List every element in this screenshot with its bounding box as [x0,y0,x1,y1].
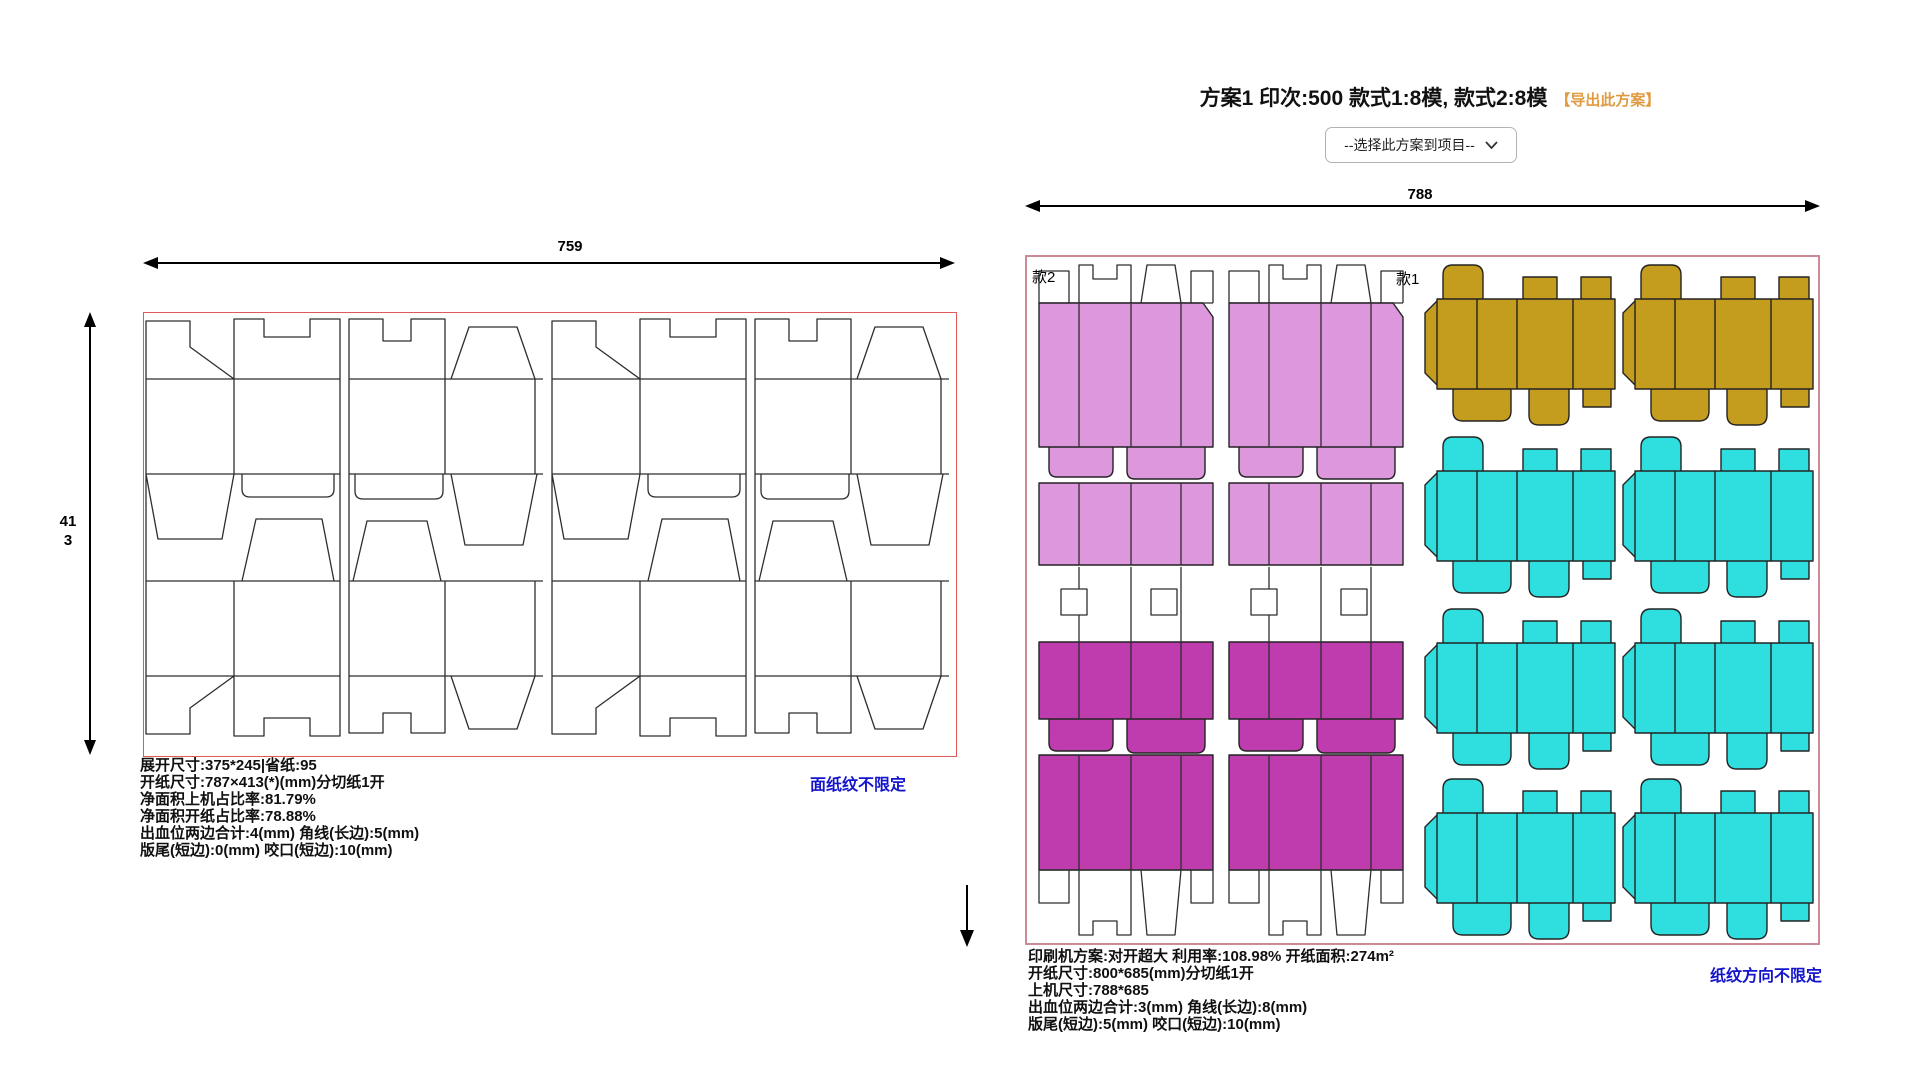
info-line: 开纸尺寸:787×413(*)(mm)分切纸1开 [140,774,419,791]
plan-project-select[interactable]: --选择此方案到项目-- [1325,127,1517,163]
info-line: 上机尺寸:788*685 [1028,982,1394,999]
plan-project-select-value: --选择此方案到项目-- [1344,135,1475,155]
left-sheet-dieline-svg [144,313,956,756]
info-line: 展开尺寸:375*245|省纸:95 [140,757,419,774]
style2-label: 款2 [1032,266,1055,287]
info-line: 开纸尺寸:800*685(mm)分切纸1开 [1028,965,1394,982]
info-line: 出血位两边合计:3(mm) 角线(长边):8(mm) [1028,999,1394,1016]
right-sheet-info: 印刷机方案:对开超大 利用率:108.98% 开纸面积:274m² 开纸尺寸:8… [1028,948,1394,1033]
info-line: 净面积上机占比率:81.79% [140,791,419,808]
info-line: 净面积开纸占比率:78.88% [140,808,419,825]
style1-gold-blanks [1425,265,1813,425]
info-line: 出血位两边合计:4(mm) 角线(长边):5(mm) [140,825,419,842]
info-line: 版尾(短边):0(mm) 咬口(短边):10(mm) [140,842,419,859]
left-sheet-width-arrow [143,255,955,271]
export-plan-link[interactable]: 【导出此方案】 [1555,89,1660,110]
left-sheet-height-arrow [82,312,98,755]
right-sheet-dieline-svg [1027,257,1818,943]
style1-label: 款1 [1396,268,1419,289]
right-sheet-height-arrow-partial [957,885,977,947]
right-grain-note: 纸纹方向不限定 [1620,962,1822,986]
left-dieline-blanks [146,319,949,736]
style1-cyan-blanks [1425,437,1813,939]
info-line: 版尾(短边):5(mm) 咬口(短边):10(mm) [1028,1016,1394,1033]
right-sheet-panel [1025,255,1820,945]
left-sheet-height-label: 413 [58,512,78,550]
style2-pink-columns [1039,265,1403,935]
left-sheet-width-label: 759 [540,238,600,255]
right-sheet-width-arrow [1025,198,1820,214]
info-line: 印刷机方案:对开超大 利用率:108.98% 开纸面积:274m² [1028,948,1394,965]
left-sheet-info: 展开尺寸:375*245|省纸:95 开纸尺寸:787×413(*)(mm)分切… [140,757,419,859]
left-sheet-panel [143,312,957,757]
chevron-down-icon [1485,141,1498,149]
left-grain-note: 面纸纹不限定 [810,771,906,795]
plan-header: 方案1 印次:500 款式1:8模, 款式2:8模 【导出此方案】 [1150,82,1710,112]
plan-title: 方案1 印次:500 款式1:8模, 款式2:8模 [1200,82,1548,112]
